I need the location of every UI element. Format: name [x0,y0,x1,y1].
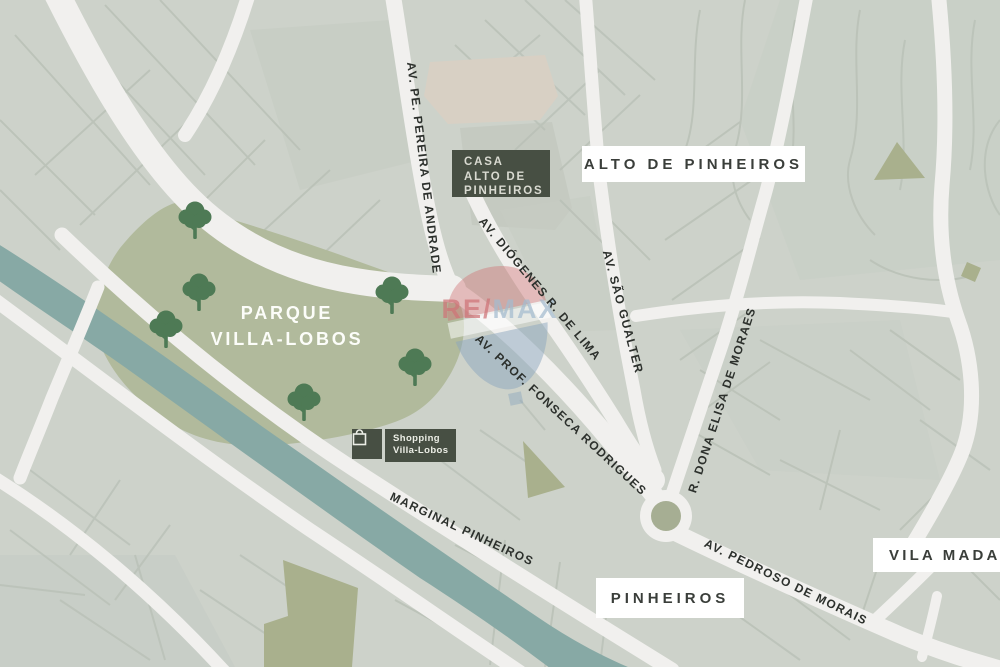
highlight-block [424,55,558,124]
shopping-bag-icon [352,429,382,459]
map: RE/MAX PARQUE VILLA-LOBOS AV. PE. PEREIR… [0,0,1000,667]
area-label-vila-madalena: VILA MADALENA [873,538,1000,572]
roundabout [640,490,692,542]
shopping-badge-label: Shopping Villa-Lobos [385,429,456,462]
area-label-alto-de-pinheiros: ALTO DE PINHEIROS [582,146,805,182]
park-label: PARQUE VILLA-LOBOS [211,300,364,352]
shopping-badge: Shopping Villa-Lobos [352,429,456,462]
map-canvas: RE/MAX [0,0,1000,667]
area-label-pinheiros: PINHEIROS [596,578,744,618]
property-badge: CASA ALTO DE PINHEIROS [452,150,550,197]
